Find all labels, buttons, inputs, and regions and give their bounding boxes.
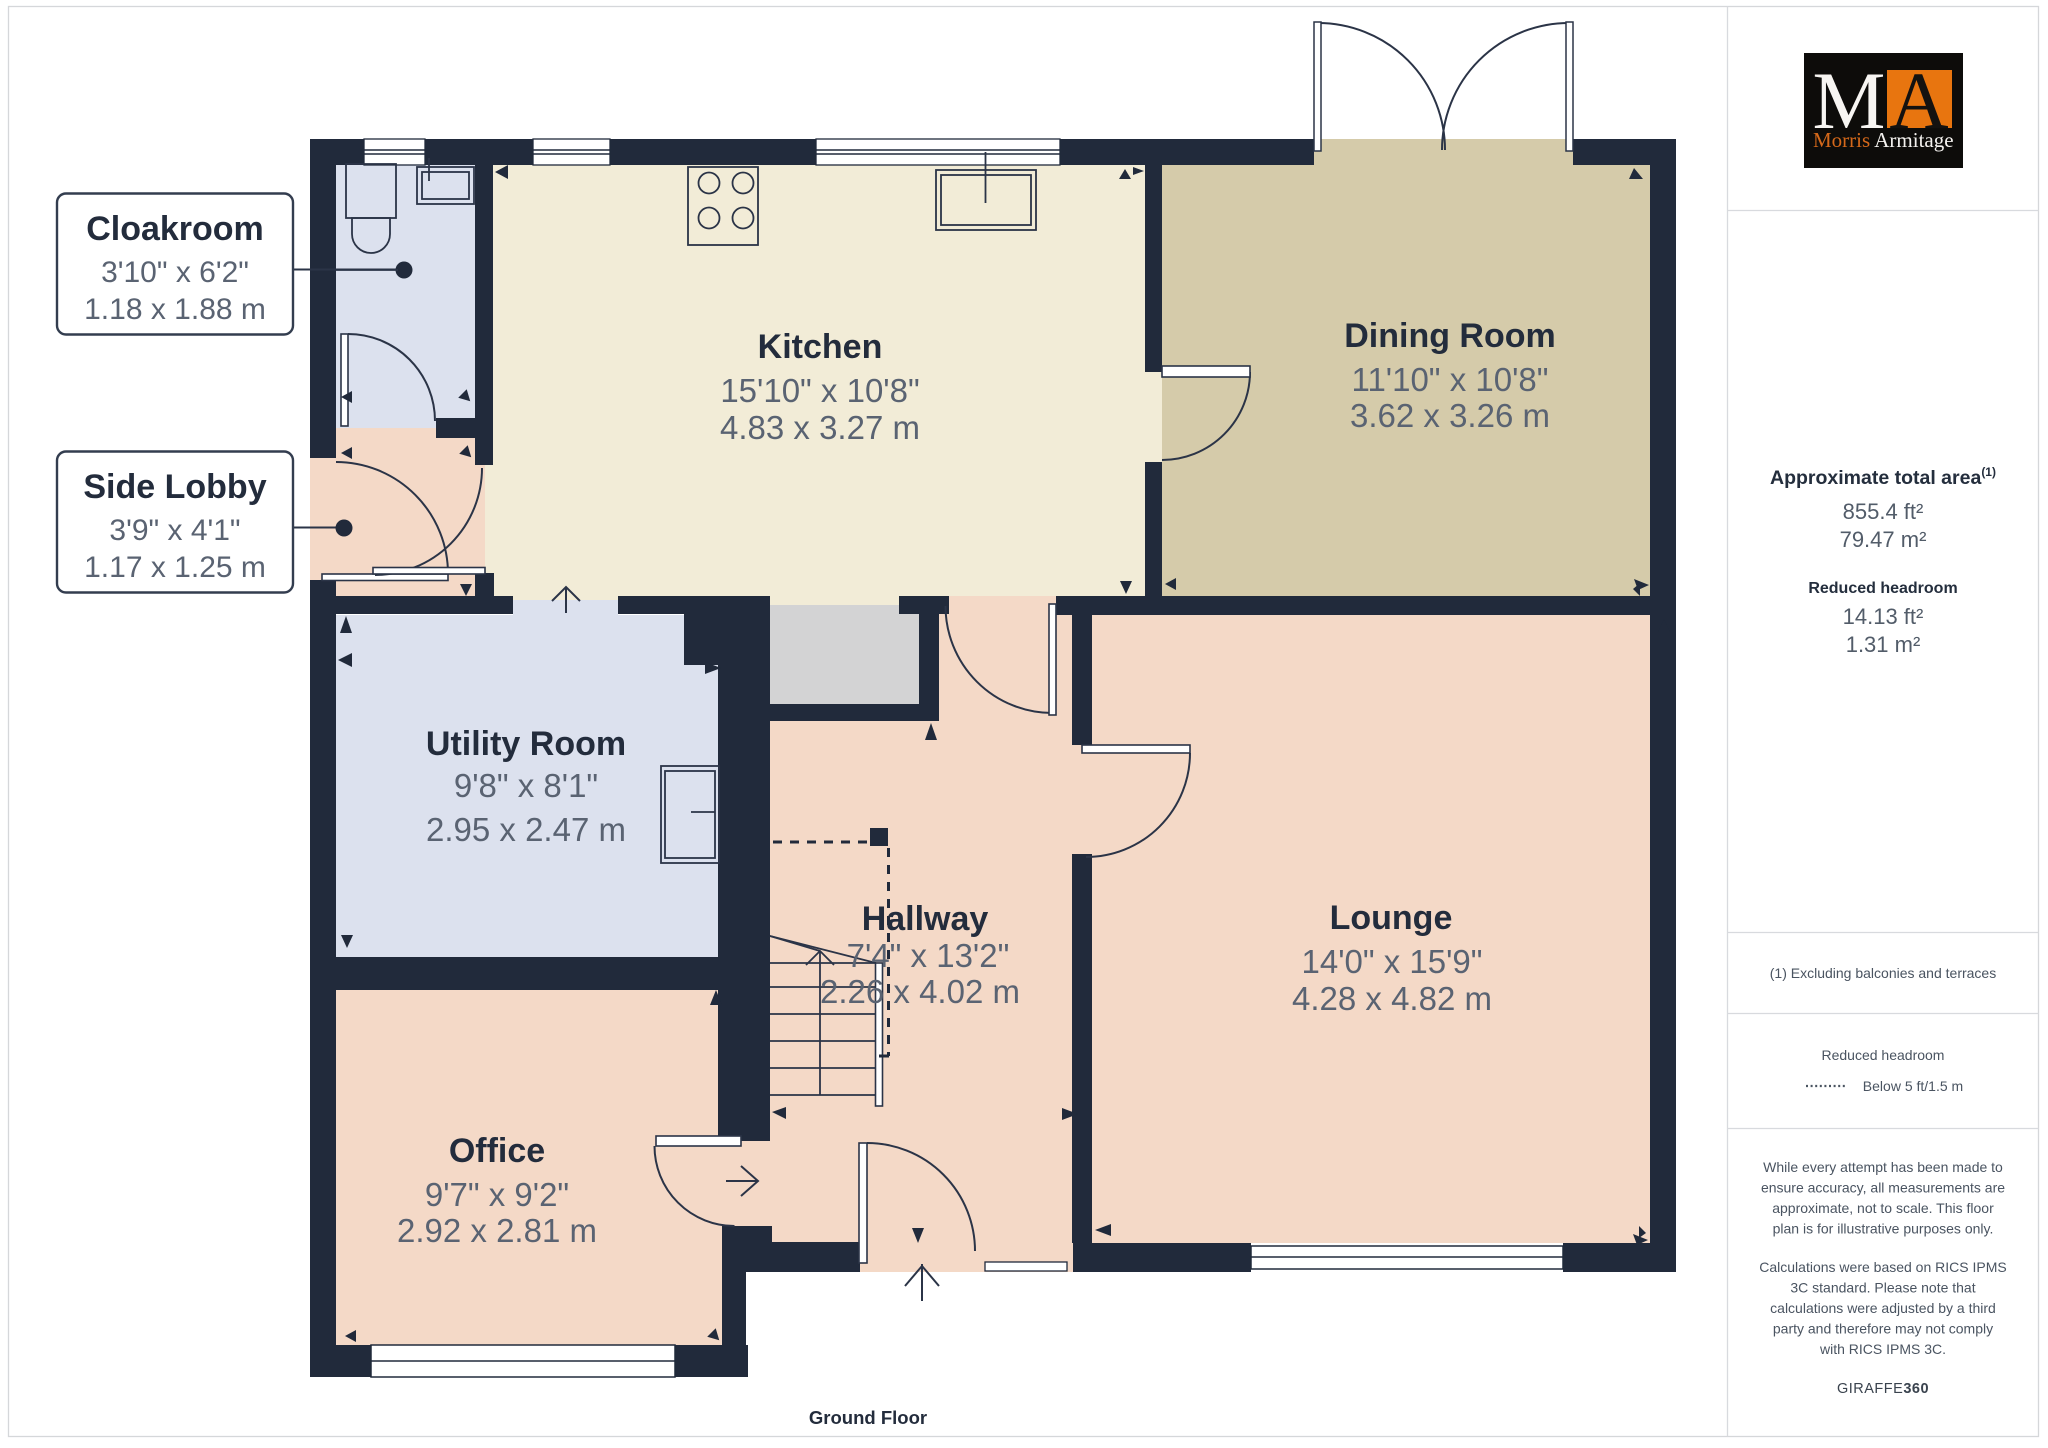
svg-text:party and therefore may not co: party and therefore may not comply xyxy=(1773,1321,1993,1337)
svg-text:79.47 m²: 79.47 m² xyxy=(1840,527,1927,552)
svg-text:Below 5 ft/1.5 m: Below 5 ft/1.5 m xyxy=(1863,1078,1963,1094)
svg-text:9'7" x 9'2": 9'7" x 9'2" xyxy=(425,1176,569,1213)
svg-text:Cloakroom: Cloakroom xyxy=(86,210,264,248)
svg-text:855.4 ft²: 855.4 ft² xyxy=(1843,499,1924,524)
svg-text:3C standard. Please note that: 3C standard. Please note that xyxy=(1790,1280,1975,1296)
svg-text:(1) Excluding balconies and te: (1) Excluding balconies and terraces xyxy=(1770,965,1996,981)
svg-text:1.18 x 1.88 m: 1.18 x 1.88 m xyxy=(84,293,266,326)
svg-text:2.95 x 2.47 m: 2.95 x 2.47 m xyxy=(426,811,626,848)
svg-text:Morris Armitage: Morris Armitage xyxy=(1813,128,1954,152)
svg-text:7'4" x 13'2": 7'4" x 13'2" xyxy=(847,937,1010,974)
svg-text:1.17 x 1.25 m: 1.17 x 1.25 m xyxy=(84,551,266,584)
svg-text:Dining Room: Dining Room xyxy=(1344,317,1556,355)
svg-text:Utility Room: Utility Room xyxy=(426,725,626,763)
svg-text:15'10" x 10'8": 15'10" x 10'8" xyxy=(720,372,919,409)
svg-text:2.92 x 2.81 m: 2.92 x 2.81 m xyxy=(397,1212,597,1249)
svg-text:GIRAFFE360: GIRAFFE360 xyxy=(1837,1381,1929,1397)
svg-text:calculations were adjusted by: calculations were adjusted by a third xyxy=(1770,1300,1996,1316)
svg-text:plan is for illustrative purpo: plan is for illustrative purposes only. xyxy=(1773,1221,1994,1237)
svg-text:1.31 m²: 1.31 m² xyxy=(1846,632,1921,657)
svg-text:Calculations were based on RIC: Calculations were based on RICS IPMS xyxy=(1759,1259,2006,1275)
svg-text:Approximate total area(1): Approximate total area(1) xyxy=(1770,465,1996,489)
svg-text:14.13 ft²: 14.13 ft² xyxy=(1843,604,1924,629)
svg-text:11'10" x 10'8": 11'10" x 10'8" xyxy=(1352,361,1549,398)
svg-text:with RICS IPMS 3C.: with RICS IPMS 3C. xyxy=(1819,1341,1946,1357)
svg-text:3'9" x 4'1": 3'9" x 4'1" xyxy=(109,514,240,547)
svg-text:Reduced headroom: Reduced headroom xyxy=(1822,1047,1945,1063)
svg-text:While every attempt has been m: While every attempt has been made to xyxy=(1763,1159,2003,1175)
svg-text:ensure accuracy, all measureme: ensure accuracy, all measurements are xyxy=(1761,1180,2005,1196)
svg-text:Ground Floor: Ground Floor xyxy=(809,1407,927,1428)
svg-text:4.28 x 4.82 m: 4.28 x 4.82 m xyxy=(1292,980,1492,1017)
svg-text:Office: Office xyxy=(449,1132,545,1170)
svg-text:2.26 x 4.02 m: 2.26 x 4.02 m xyxy=(820,973,1020,1010)
svg-text:approximate, not to scale. Thi: approximate, not to scale. This floor xyxy=(1772,1200,1994,1216)
svg-text:Reduced headroom: Reduced headroom xyxy=(1808,580,1957,597)
svg-text:Kitchen: Kitchen xyxy=(758,328,883,366)
svg-text:3.62 x 3.26 m: 3.62 x 3.26 m xyxy=(1350,397,1550,434)
svg-text:Side Lobby: Side Lobby xyxy=(83,468,266,506)
svg-text:14'0" x 15'9": 14'0" x 15'9" xyxy=(1302,943,1483,980)
svg-text:3'10" x 6'2": 3'10" x 6'2" xyxy=(101,256,249,289)
svg-text:Hallway: Hallway xyxy=(862,900,989,938)
svg-text:Lounge: Lounge xyxy=(1330,899,1453,937)
svg-text:9'8" x 8'1": 9'8" x 8'1" xyxy=(454,767,598,804)
svg-text:4.83 x 3.27 m: 4.83 x 3.27 m xyxy=(720,409,920,446)
